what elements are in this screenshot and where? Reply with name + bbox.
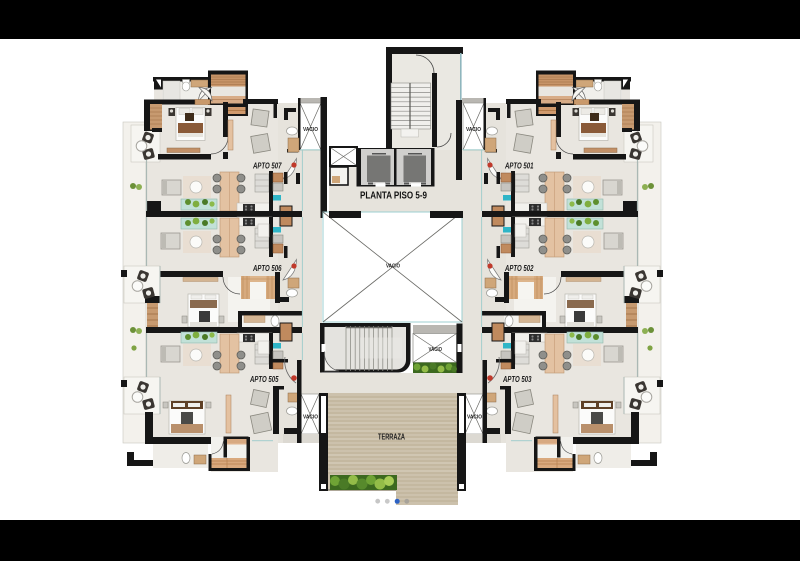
svg-text:VACIO: VACIO bbox=[386, 264, 400, 270]
svg-text:VACIO: VACIO bbox=[466, 127, 481, 133]
svg-text:VACIO: VACIO bbox=[467, 415, 482, 421]
svg-text:APTO 501: APTO 501 bbox=[504, 162, 534, 171]
svg-text:PLANTA PISO 5-9: PLANTA PISO 5-9 bbox=[360, 190, 427, 201]
svg-text:TERRAZA: TERRAZA bbox=[378, 432, 405, 442]
svg-text:APTO 507: APTO 507 bbox=[252, 162, 282, 171]
svg-text:APTO 505: APTO 505 bbox=[249, 375, 279, 384]
svg-text:APTO 506: APTO 506 bbox=[252, 264, 282, 273]
svg-text:VACIO: VACIO bbox=[303, 127, 318, 133]
svg-text:VACIO: VACIO bbox=[429, 347, 443, 353]
svg-text:VACIO: VACIO bbox=[303, 415, 318, 421]
svg-text:APTO 503: APTO 503 bbox=[502, 375, 532, 384]
svg-text:APTO 502: APTO 502 bbox=[504, 264, 534, 273]
